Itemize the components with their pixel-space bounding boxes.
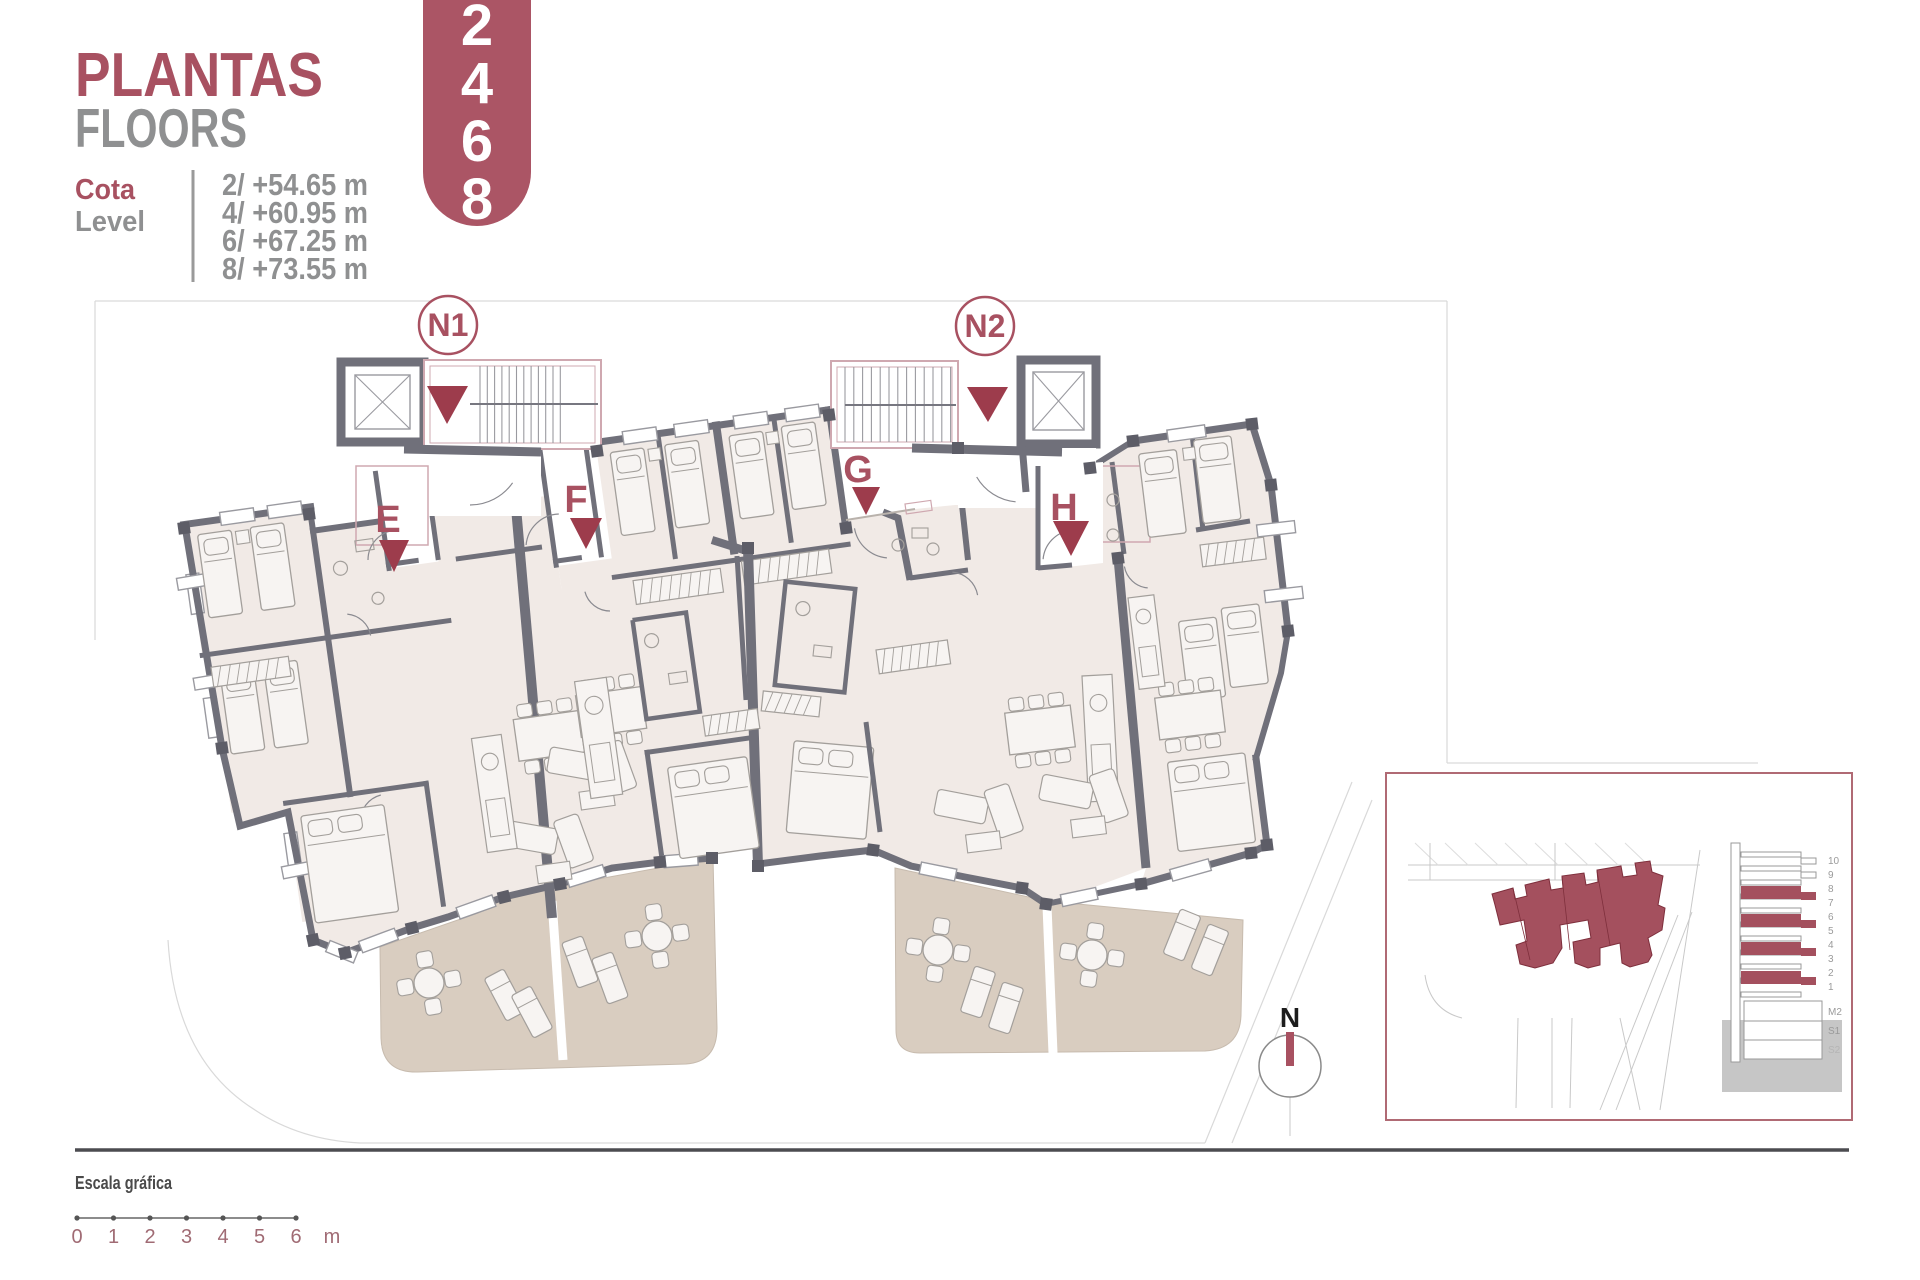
svg-text:4: 4 <box>461 51 493 116</box>
svg-text:S2: S2 <box>1828 1045 1841 1056</box>
svg-text:G: G <box>843 449 873 491</box>
svg-text:1: 1 <box>1828 982 1834 993</box>
svg-text:1: 1 <box>108 1226 119 1248</box>
svg-text:M2: M2 <box>1828 1007 1842 1018</box>
svg-text:N2: N2 <box>965 308 1006 344</box>
svg-text:Cota: Cota <box>75 174 136 206</box>
svg-text:8: 8 <box>461 167 493 232</box>
svg-text:3: 3 <box>1828 954 1834 965</box>
svg-text:4: 4 <box>1828 940 1834 951</box>
svg-text:8: 8 <box>1828 884 1834 895</box>
svg-text:2: 2 <box>144 1226 155 1248</box>
svg-text:m: m <box>324 1226 341 1248</box>
svg-text:2: 2 <box>461 0 493 58</box>
svg-text:6: 6 <box>290 1226 301 1248</box>
svg-text:Level: Level <box>75 206 145 238</box>
svg-text:N: N <box>1280 1002 1300 1033</box>
svg-text:Escala gráfica: Escala gráfica <box>75 1173 173 1193</box>
svg-text:0: 0 <box>71 1226 82 1248</box>
svg-text:10: 10 <box>1828 856 1840 867</box>
svg-text:5: 5 <box>254 1226 265 1248</box>
svg-text:6: 6 <box>461 109 493 174</box>
svg-text:2: 2 <box>1828 968 1834 979</box>
svg-text:FLOORS: FLOORS <box>75 97 247 159</box>
svg-text:9: 9 <box>1828 870 1834 881</box>
svg-text:S1: S1 <box>1828 1026 1841 1037</box>
svg-text:N1: N1 <box>428 307 469 343</box>
svg-text:5: 5 <box>1828 926 1834 937</box>
svg-text:7: 7 <box>1828 898 1834 909</box>
svg-text:6: 6 <box>1828 912 1834 923</box>
svg-text:E: E <box>375 499 400 541</box>
svg-text:3: 3 <box>181 1226 192 1248</box>
svg-text:F: F <box>564 479 587 521</box>
svg-text:8/ +73.55 m: 8/ +73.55 m <box>222 251 368 286</box>
svg-text:4: 4 <box>217 1226 228 1248</box>
